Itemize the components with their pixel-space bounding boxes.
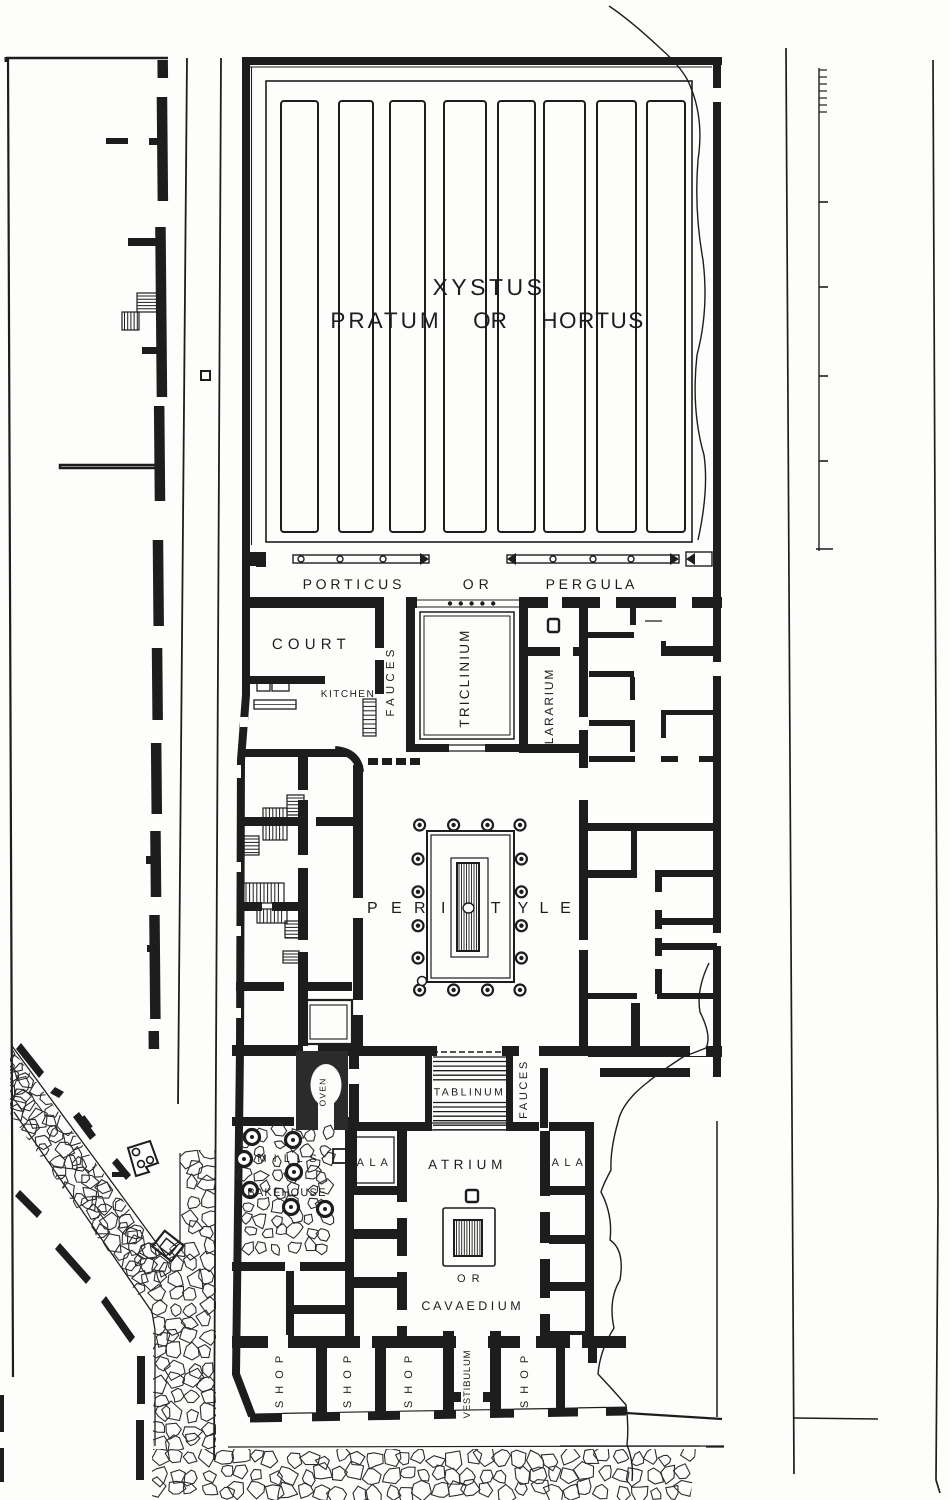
svg-text:BAKEHOUSE: BAKEHOUSE [247, 1187, 326, 1199]
svg-text:R: R [414, 900, 426, 917]
svg-text:C A V A E D I U M: C A V A E D I U M [421, 1299, 520, 1313]
svg-text:E: E [560, 900, 571, 917]
svg-text:LARARIUM: LARARIUM [542, 668, 556, 744]
svg-text:HORTUS: HORTUS [541, 308, 645, 333]
svg-text:I: I [441, 900, 445, 917]
svg-text:A L A: A L A [357, 1157, 390, 1169]
svg-text:TRICLINIUM: TRICLINIUM [457, 628, 472, 727]
svg-text:L: L [540, 900, 549, 917]
svg-text:TABLINUM: TABLINUM [434, 1087, 506, 1099]
svg-text:VESTIBULUM: VESTIBULUM [462, 1350, 473, 1419]
svg-text:O R: O R [457, 1273, 481, 1285]
svg-text:P E R G U L A: P E R G U L A [546, 576, 635, 592]
svg-text:Y: Y [518, 900, 529, 917]
svg-text:P O R T I C U S: P O R T I C U S [303, 576, 402, 592]
svg-text:E: E [391, 900, 402, 917]
svg-text:FAUCES: FAUCES [385, 645, 397, 716]
svg-text:T: T [491, 900, 501, 917]
svg-text:KITCHEN: KITCHEN [321, 689, 375, 700]
svg-text:P: P [367, 900, 378, 917]
svg-text:A T R I U M: A T R I U M [428, 1157, 503, 1172]
svg-text:O R: O R [463, 576, 489, 592]
svg-text:FAUCES: FAUCES [518, 1059, 530, 1119]
svg-text:S H O P: S H O P [342, 1354, 354, 1408]
svg-text:OVEN: OVEN [318, 1078, 328, 1107]
svg-text:OR: OR [473, 308, 507, 333]
svg-text:C O U R T: C O U R T [272, 636, 346, 653]
svg-text:XYSTUS: XYSTUS [432, 274, 545, 300]
svg-text:A L A: A L A [552, 1157, 585, 1169]
svg-text:S H O P: S H O P [519, 1354, 531, 1408]
svg-text:S H O P: S H O P [403, 1354, 415, 1408]
svg-text:M I L L S: M I L L S [257, 1153, 318, 1165]
svg-text:PRATUM: PRATUM [330, 308, 441, 333]
svg-text:S H O P: S H O P [274, 1354, 286, 1408]
